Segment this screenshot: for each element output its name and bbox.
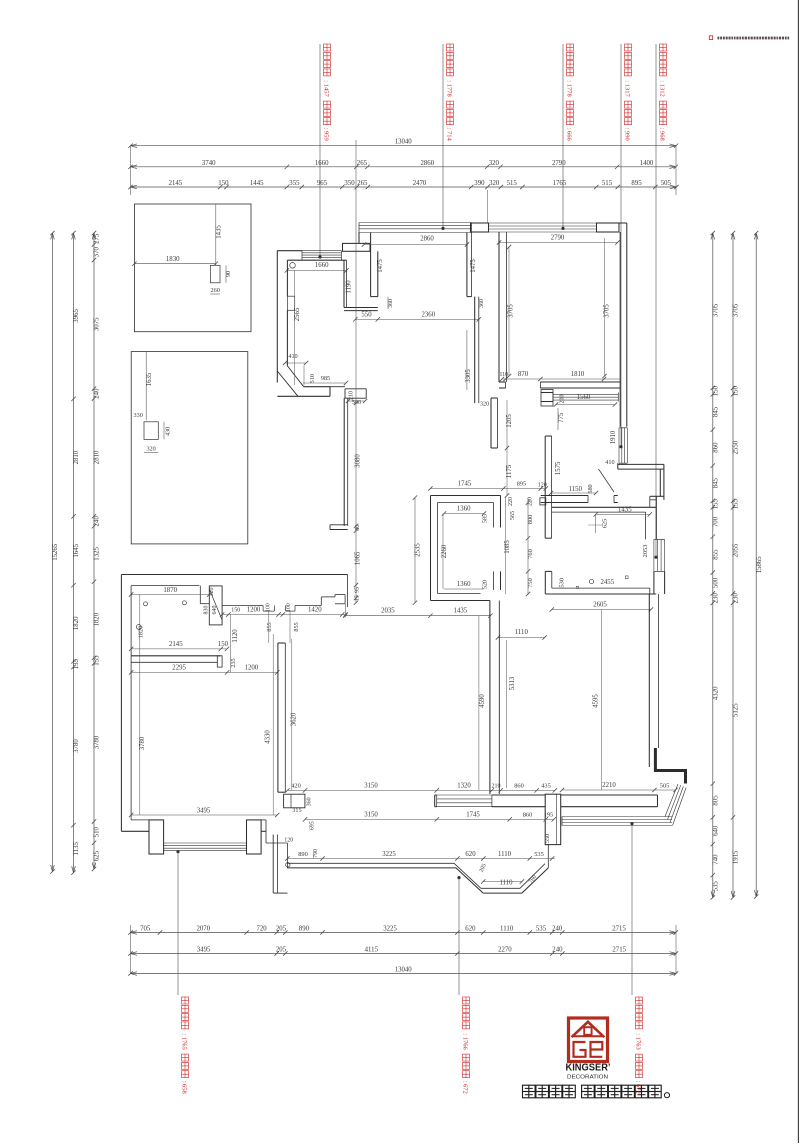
- svg-text:: 1763: : 1763: [634, 1033, 641, 1049]
- svg-text:3780: 3780: [73, 739, 80, 753]
- svg-text:3150: 3150: [364, 782, 378, 789]
- svg-text:150: 150: [218, 180, 229, 187]
- svg-text:155: 155: [712, 499, 719, 510]
- svg-text:1120: 1120: [232, 629, 239, 643]
- svg-text:320: 320: [480, 402, 489, 408]
- svg-text:760: 760: [527, 549, 534, 559]
- svg-text:3780: 3780: [139, 736, 146, 750]
- svg-text:585: 585: [482, 514, 489, 523]
- svg-text:205: 205: [276, 947, 287, 954]
- svg-text:1320: 1320: [457, 782, 471, 789]
- svg-text:135: 135: [73, 659, 80, 670]
- svg-text:150: 150: [712, 385, 719, 396]
- svg-text:370: 370: [94, 247, 101, 258]
- svg-text:2360: 2360: [422, 312, 436, 319]
- svg-text:965: 965: [317, 180, 328, 187]
- svg-text:240: 240: [94, 516, 101, 527]
- svg-text:3305: 3305: [465, 369, 472, 383]
- svg-text:1110: 1110: [498, 851, 512, 858]
- svg-text:: 1457: : 1457: [322, 80, 329, 97]
- svg-text:2810: 2810: [94, 450, 101, 464]
- svg-text:565: 565: [509, 511, 516, 520]
- svg-text:205: 205: [276, 926, 287, 933]
- svg-text:3740: 3740: [202, 160, 216, 167]
- svg-text:1660: 1660: [315, 262, 329, 269]
- svg-text:355: 355: [289, 180, 300, 187]
- svg-text:510: 510: [309, 374, 316, 383]
- svg-text:2790: 2790: [551, 235, 565, 242]
- svg-text:1810: 1810: [571, 371, 585, 378]
- svg-text:805: 805: [712, 795, 719, 806]
- svg-text:2035: 2035: [381, 608, 395, 615]
- svg-text:: 658: : 658: [180, 1081, 187, 1094]
- svg-text:1200: 1200: [247, 607, 261, 614]
- svg-text:320: 320: [489, 160, 500, 167]
- svg-text:1575: 1575: [555, 461, 562, 475]
- svg-text:1325: 1325: [94, 547, 101, 561]
- svg-text:95: 95: [354, 587, 360, 593]
- svg-text:3705: 3705: [712, 303, 719, 317]
- svg-text:3705: 3705: [733, 303, 740, 317]
- svg-text:860: 860: [712, 442, 719, 453]
- svg-text:845: 845: [712, 478, 719, 489]
- svg-text:1360: 1360: [457, 506, 471, 513]
- svg-text:320: 320: [489, 180, 500, 187]
- svg-text:3225: 3225: [383, 926, 397, 933]
- svg-text:640: 640: [212, 606, 218, 615]
- svg-text:: 1766: : 1766: [461, 1033, 468, 1050]
- svg-text:1915: 1915: [733, 850, 740, 864]
- svg-text:275: 275: [94, 233, 101, 244]
- svg-text:320: 320: [146, 446, 155, 453]
- svg-text:580: 580: [587, 484, 594, 493]
- svg-text:430: 430: [165, 427, 172, 436]
- svg-text:1820: 1820: [94, 612, 101, 626]
- svg-text:320: 320: [209, 588, 215, 597]
- svg-text:: 1778: : 1778: [565, 80, 572, 96]
- svg-text:2455: 2455: [601, 579, 615, 586]
- svg-text:640: 640: [712, 825, 719, 836]
- svg-text:515: 515: [507, 180, 518, 187]
- svg-text:200: 200: [560, 395, 566, 404]
- svg-text:2070: 2070: [197, 926, 211, 933]
- svg-text:410: 410: [605, 459, 614, 466]
- svg-text:15265: 15265: [52, 543, 59, 561]
- svg-text:350: 350: [344, 180, 355, 187]
- svg-text:510: 510: [94, 827, 101, 838]
- svg-text:220: 220: [528, 497, 534, 506]
- svg-text:260: 260: [211, 287, 220, 294]
- svg-text:890: 890: [299, 926, 310, 933]
- svg-text:: 666: : 666: [565, 128, 572, 142]
- svg-text:410: 410: [288, 353, 297, 360]
- svg-text:2145: 2145: [169, 641, 183, 648]
- svg-text:1360: 1360: [457, 581, 471, 588]
- svg-text:3705: 3705: [508, 304, 515, 318]
- svg-text:870: 870: [518, 371, 529, 378]
- svg-text:1420: 1420: [308, 607, 322, 614]
- svg-text:750: 750: [527, 578, 534, 588]
- svg-text:985: 985: [321, 375, 330, 382]
- svg-text:1445: 1445: [250, 180, 264, 187]
- svg-text:265: 265: [357, 160, 368, 167]
- svg-text:2535: 2535: [414, 543, 421, 557]
- svg-text:1150: 1150: [569, 486, 583, 493]
- svg-text:895: 895: [517, 481, 526, 488]
- svg-text:1870: 1870: [163, 587, 177, 594]
- svg-text:DECORATION: DECORATION: [567, 1075, 608, 1081]
- svg-text:: 714: : 714: [445, 128, 452, 142]
- svg-text:: 990: : 990: [623, 128, 630, 141]
- svg-text:100: 100: [286, 603, 292, 612]
- svg-text:230: 230: [712, 593, 719, 604]
- svg-text:195: 195: [544, 812, 553, 819]
- svg-text:620: 620: [465, 851, 476, 858]
- svg-text:2605: 2605: [593, 602, 607, 609]
- svg-text:265: 265: [357, 180, 368, 187]
- svg-text:1085: 1085: [504, 540, 511, 554]
- svg-text:1645: 1645: [73, 543, 80, 557]
- svg-text:2810: 2810: [73, 450, 80, 464]
- svg-text:2860: 2860: [420, 236, 434, 243]
- svg-text:720: 720: [256, 926, 267, 933]
- svg-text:1765: 1765: [553, 180, 567, 187]
- svg-text:2790: 2790: [552, 160, 566, 167]
- svg-text:855: 855: [266, 622, 273, 631]
- svg-text:530: 530: [559, 578, 566, 588]
- svg-text:: 959: : 959: [322, 128, 329, 141]
- svg-text:1745: 1745: [458, 481, 472, 488]
- svg-text:2470: 2470: [413, 180, 427, 187]
- svg-text:1820: 1820: [73, 616, 80, 630]
- svg-text:860: 860: [514, 782, 524, 789]
- svg-text:535: 535: [536, 926, 547, 933]
- svg-text:505: 505: [660, 783, 670, 790]
- svg-text:3495: 3495: [197, 947, 211, 954]
- svg-text:3620: 3620: [290, 712, 297, 726]
- svg-text:150: 150: [733, 385, 740, 396]
- svg-text:100: 100: [266, 603, 272, 612]
- svg-text:2715: 2715: [612, 947, 626, 954]
- svg-text:695: 695: [309, 821, 315, 830]
- svg-text:1110: 1110: [499, 880, 513, 887]
- svg-text:535: 535: [712, 881, 719, 892]
- svg-text:625: 625: [601, 519, 608, 529]
- svg-text:1475: 1475: [377, 259, 384, 273]
- svg-text:4330: 4330: [264, 730, 271, 744]
- svg-text:1190: 1190: [346, 280, 353, 294]
- svg-text:2715: 2715: [612, 926, 626, 933]
- svg-text:800: 800: [527, 515, 534, 525]
- svg-text:13040: 13040: [395, 967, 413, 974]
- svg-text:5125: 5125: [733, 703, 740, 717]
- svg-text:5313: 5313: [509, 676, 516, 690]
- svg-text:830: 830: [204, 606, 210, 615]
- svg-text:1175: 1175: [506, 464, 513, 478]
- svg-text:2145: 2145: [169, 180, 183, 187]
- svg-text:4595: 4595: [593, 694, 600, 708]
- svg-text:550: 550: [361, 312, 372, 319]
- svg-text:: 1317: : 1317: [623, 80, 630, 97]
- svg-text:1475: 1475: [470, 259, 477, 273]
- svg-text:230: 230: [733, 593, 740, 604]
- svg-text:740: 740: [712, 854, 719, 865]
- svg-text:210: 210: [492, 783, 501, 789]
- svg-text:1820: 1820: [138, 626, 145, 638]
- svg-text:150: 150: [218, 641, 229, 648]
- svg-text:235: 235: [230, 658, 237, 667]
- svg-text:: 1312: : 1312: [658, 80, 665, 96]
- svg-text:505: 505: [661, 180, 672, 187]
- svg-text:2260: 2260: [441, 544, 448, 558]
- svg-text:1205: 1205: [506, 414, 513, 428]
- svg-text:15: 15: [354, 595, 360, 601]
- svg-text:150: 150: [231, 608, 240, 614]
- svg-text:790: 790: [313, 849, 319, 858]
- svg-text:1400: 1400: [640, 160, 654, 167]
- svg-text:4320: 4320: [712, 686, 719, 700]
- svg-text:3495: 3495: [197, 807, 211, 814]
- svg-text:1830: 1830: [166, 256, 180, 263]
- svg-text:135: 135: [94, 655, 101, 666]
- svg-text:3780: 3780: [94, 735, 101, 749]
- svg-text:4115: 4115: [365, 947, 379, 954]
- svg-text:3075: 3075: [94, 317, 101, 331]
- svg-text:2053: 2053: [642, 545, 649, 558]
- svg-text:620: 620: [465, 926, 476, 933]
- svg-text:845: 845: [712, 406, 719, 417]
- svg-text:1200: 1200: [245, 665, 259, 672]
- svg-text:15865: 15865: [756, 556, 763, 574]
- svg-text:535: 535: [534, 851, 544, 858]
- svg-text:: 1778: : 1778: [445, 80, 452, 96]
- svg-text:2270: 2270: [498, 947, 512, 954]
- svg-text:315: 315: [292, 807, 301, 814]
- svg-text:700: 700: [712, 516, 719, 527]
- svg-text:1435: 1435: [454, 608, 468, 615]
- svg-text:1435: 1435: [216, 225, 223, 239]
- svg-text:3705: 3705: [604, 304, 611, 318]
- svg-text:420: 420: [291, 782, 301, 789]
- svg-text:13040: 13040: [395, 139, 413, 146]
- svg-text:520: 520: [481, 580, 488, 589]
- svg-text:1135: 1135: [73, 842, 80, 856]
- svg-text:240: 240: [552, 926, 563, 933]
- svg-text:1660: 1660: [315, 160, 329, 167]
- svg-text:: 672: : 672: [461, 1081, 468, 1094]
- svg-text:110: 110: [500, 372, 509, 378]
- svg-text:1435: 1435: [618, 507, 632, 514]
- svg-text:1550: 1550: [544, 834, 551, 846]
- svg-text:KINGSER’: KINGSER’: [566, 1062, 611, 1073]
- svg-text:3225: 3225: [382, 851, 396, 858]
- svg-text:435: 435: [541, 782, 551, 789]
- svg-text:895: 895: [631, 180, 642, 187]
- svg-text:890: 890: [298, 851, 308, 858]
- svg-text:4590: 4590: [479, 694, 486, 708]
- svg-text:860: 860: [523, 811, 533, 818]
- svg-text:: 1765: : 1765: [180, 1033, 187, 1049]
- svg-text:855: 855: [293, 622, 300, 631]
- svg-text:855: 855: [712, 549, 719, 560]
- svg-text:1910: 1910: [610, 430, 617, 444]
- svg-text:1065: 1065: [355, 551, 362, 565]
- svg-text:240: 240: [552, 947, 563, 954]
- svg-text:3150: 3150: [364, 811, 378, 818]
- svg-text:625: 625: [94, 850, 101, 861]
- svg-text:515: 515: [602, 180, 613, 187]
- svg-text:2055: 2055: [733, 543, 740, 557]
- svg-text:1560: 1560: [577, 394, 591, 401]
- svg-text:3965: 3965: [73, 309, 80, 323]
- svg-text:2210: 2210: [602, 782, 616, 789]
- svg-text:360: 360: [307, 797, 313, 806]
- svg-text:2860: 2860: [421, 160, 435, 167]
- svg-text:1745: 1745: [466, 811, 480, 818]
- svg-text:775: 775: [558, 412, 565, 423]
- svg-text:705: 705: [140, 926, 151, 933]
- svg-text:500: 500: [712, 577, 719, 588]
- svg-text:1110: 1110: [500, 926, 514, 933]
- svg-text:330: 330: [134, 412, 143, 419]
- svg-text:155: 155: [733, 499, 740, 510]
- svg-text:240: 240: [94, 388, 101, 399]
- svg-text:220: 220: [508, 497, 514, 506]
- svg-text:1635: 1635: [146, 372, 153, 386]
- svg-text:1110: 1110: [515, 629, 529, 636]
- svg-text:390: 390: [474, 180, 485, 187]
- svg-text:90: 90: [225, 271, 232, 277]
- svg-text:: 968: : 968: [658, 128, 665, 141]
- svg-text:2295: 2295: [172, 665, 186, 672]
- svg-text:2550: 2550: [733, 440, 740, 454]
- svg-text:3080: 3080: [355, 454, 362, 468]
